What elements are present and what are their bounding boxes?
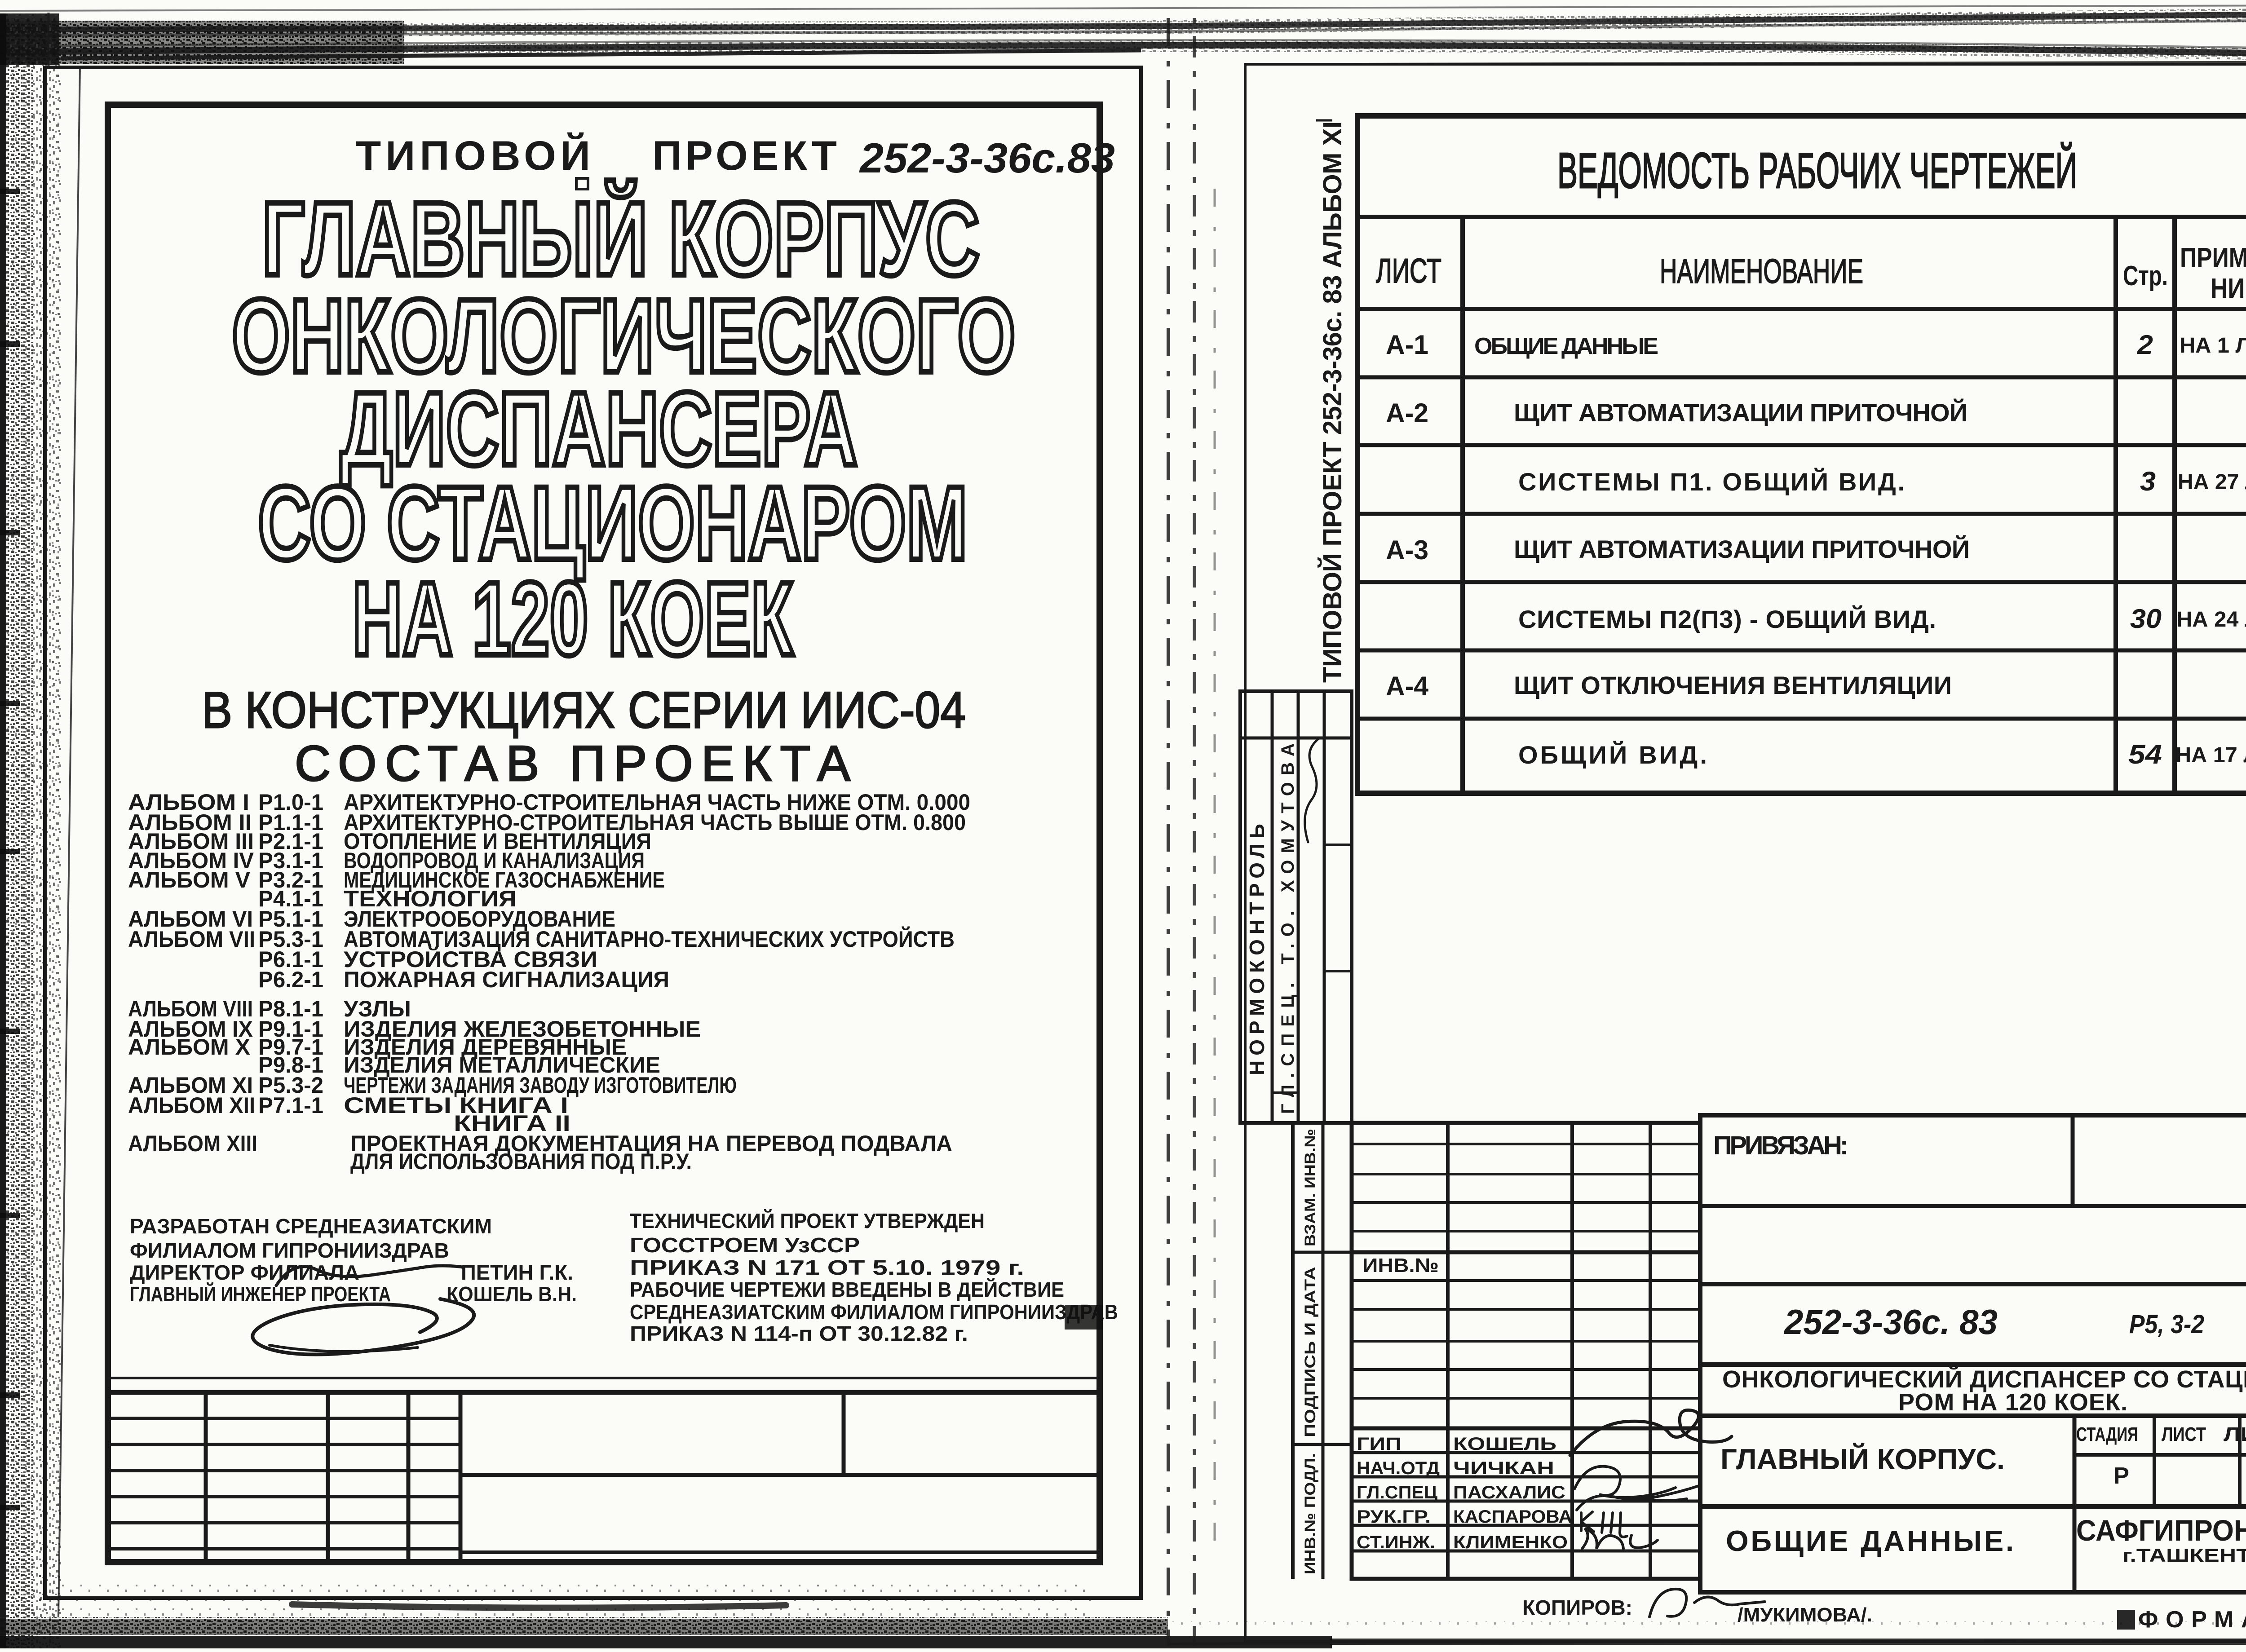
svg-text:54: 54 — [2128, 739, 2162, 769]
svg-text:А-2: А-2 — [1386, 398, 1428, 428]
svg-text:НА 1 ЛИСТЕ: НА 1 ЛИСТЕ — [2180, 334, 2246, 358]
svg-text:КОШЕЛЬ: КОШЕЛЬ — [1453, 1434, 1556, 1454]
svg-text:ЩИТ АВТОМАТИЗАЦИИ ПРИТОЧНОЙ: ЩИТ АВТОМАТИЗАЦИИ ПРИТОЧНОЙ — [1514, 398, 1967, 427]
svg-text:РУК.ГР.: РУК.ГР. — [1357, 1507, 1431, 1527]
svg-text:РАБОЧИЕ ЧЕРТЕЖИ ВВЕДЕНЫ В ДЕЙС: РАБОЧИЕ ЧЕРТЕЖИ ВВЕДЕНЫ В ДЕЙСТВИЕ — [630, 1278, 1064, 1301]
svg-text:ГЛАВНЫЙ КОРПУС.: ГЛАВНЫЙ КОРПУС. — [1720, 1443, 2005, 1475]
svg-text:ПРИВЯЗАН:: ПРИВЯЗАН: — [1713, 1131, 1848, 1160]
svg-text:Стр.: Стр. — [2123, 261, 2168, 292]
svg-text:АЛЬБОМ V: АЛЬБОМ V — [128, 867, 251, 892]
svg-text:ИНВ.№ ПОДЛ.: ИНВ.№ ПОДЛ. — [1302, 1453, 1319, 1574]
svg-text:ТИПОВОЙ ПРОЕКТ 252-3-36с. 83: ТИПОВОЙ ПРОЕКТ 252-3-36с. 83 АЛЬБОМ XI — [1318, 121, 1347, 683]
svg-text:ПОЖАРНАЯ СИГНАЛИЗАЦИЯ: ПОЖАРНАЯ СИГНАЛИЗАЦИЯ — [344, 967, 669, 992]
svg-text:252-3-36с.83: 252-3-36с.83 — [859, 134, 1115, 181]
svg-text:ИНВ.№: ИНВ.№ — [1362, 1254, 1439, 1277]
svg-text:ЩИТ ОТКЛЮЧЕНИЯ ВЕНТИЛЯЦИИ: ЩИТ ОТКЛЮЧЕНИЯ ВЕНТИЛЯЦИИ — [1514, 671, 1952, 699]
svg-text:ПЕТИН Г.К.: ПЕТИН Г.К. — [461, 1261, 573, 1284]
svg-text:252-3-36с. 83: 252-3-36с. 83 — [1783, 1302, 1998, 1342]
svg-text:ПРИКАЗ N 171 ОТ 5.10. 1979 г.: ПРИКАЗ N 171 ОТ 5.10. 1979 г. — [630, 1256, 1024, 1279]
svg-text:НА 24 ЛИСТАХ: НА 24 ЛИСТАХ — [2176, 608, 2246, 632]
svg-text:А-4: А-4 — [1386, 671, 1429, 701]
svg-text:ТЕХНИЧЕСКИЙ ПРОЕКТ УТВЕРЖДЕН: ТЕХНИЧЕСКИЙ ПРОЕКТ УТВЕРЖДЕН — [630, 1209, 985, 1232]
svg-text:Р: Р — [2113, 1463, 2129, 1489]
svg-text:ФОРМАТ 11: ФОРМАТ 11 — [2138, 1607, 2246, 1633]
svg-text:ВЕДОМОСТЬ РАБОЧИХ ЧЕРТЕЖЕЙ: ВЕДОМОСТЬ РАБОЧИХ ЧЕРТЕЖЕЙ — [1557, 142, 2077, 199]
svg-text:ЛИСТ: ЛИСТ — [2162, 1423, 2206, 1445]
svg-text:НА 27 ЛИСТАХ: НА 27 ЛИСТАХ — [2178, 470, 2246, 494]
svg-text:В КОНСТРУКЦИЯХ СЕРИИ ИИС-04: В КОНСТРУКЦИЯХ СЕРИИ ИИС-04 — [202, 682, 966, 739]
svg-text:НА 17 ЛИСТАХ.: НА 17 ЛИСТАХ. — [2175, 743, 2246, 767]
svg-text:ГОССТРОЕМ УзССР: ГОССТРОЕМ УзССР — [630, 1233, 860, 1257]
svg-text:НИЕ: НИЕ — [2211, 273, 2246, 304]
svg-text:/МУКИМОВА/.: /МУКИМОВА/. — [1738, 1604, 1872, 1626]
svg-text:30: 30 — [2130, 604, 2162, 634]
svg-text:ЧИЧКАН: ЧИЧКАН — [1453, 1458, 1554, 1478]
svg-text:ГЛАВНЫЙ ИНЖЕНЕР ПРОЕКТА: ГЛАВНЫЙ ИНЖЕНЕР ПРОЕКТА — [130, 1282, 391, 1306]
svg-text:А-1: А-1 — [1386, 330, 1428, 360]
svg-text:ОБЩИЕ ДАННЫЕ.: ОБЩИЕ ДАННЫЕ. — [1726, 1524, 2014, 1557]
svg-text:КОПИРОВ:: КОПИРОВ: — [1522, 1596, 1632, 1619]
svg-text:Р7.1-1: Р7.1-1 — [258, 1093, 323, 1118]
svg-text:КАСПАРОВА: КАСПАРОВА — [1453, 1507, 1572, 1527]
svg-text:ПРИКАЗ N 114-п ОТ 30.12.82 г.: ПРИКАЗ N 114-п ОТ 30.12.82 г. — [630, 1322, 968, 1345]
svg-text:НАЧ.ОТД: НАЧ.ОТД — [1357, 1458, 1440, 1478]
svg-text:г.ТАШКЕНТ: г.ТАШКЕНТ — [2122, 1545, 2246, 1566]
svg-text:САФГИПРОНИИЗ: САФГИПРОНИИЗ — [2076, 1514, 2246, 1547]
svg-text:Р5, 3-2: Р5, 3-2 — [2129, 1310, 2204, 1339]
svg-text:ГИП: ГИП — [1357, 1434, 1402, 1454]
svg-text:АЛЬБОМ XIII: АЛЬБОМ XIII — [128, 1131, 257, 1156]
svg-text:НАИМЕНОВАНИЕ: НАИМЕНОВАНИЕ — [1660, 252, 1863, 291]
svg-text:ЩИТ АВТОМАТИЗАЦИИ ПРИТОЧНОЙ: ЩИТ АВТОМАТИЗАЦИИ ПРИТОЧНОЙ — [1514, 535, 1970, 563]
svg-text:СТАДИЯ: СТАДИЯ — [2076, 1423, 2138, 1445]
svg-text:СРЕДНЕАЗИАТСКИМ ФИЛИАЛОМ ГИПРО: СРЕДНЕАЗИАТСКИМ ФИЛИАЛОМ ГИПРОНИИЗДРАВ — [630, 1300, 1118, 1324]
svg-text:ЛИСТ: ЛИСТ — [1376, 252, 1441, 290]
svg-text:ОБЩИЕ ДАННЫЕ: ОБЩИЕ ДАННЫЕ — [1474, 333, 1658, 359]
svg-text:АЛЬБОМ XII: АЛЬБОМ XII — [128, 1093, 255, 1118]
svg-text:ПОДПИСЬ И ДАТА: ПОДПИСЬ И ДАТА — [1302, 1267, 1319, 1437]
svg-text:ДЛЯ ИСПОЛЬЗОВАНИЯ ПОД П.Р.У.: ДЛЯ ИСПОЛЬЗОВАНИЯ ПОД П.Р.У. — [350, 1149, 692, 1174]
svg-text:РАЗРАБОТАН СРЕДНЕАЗИАТСКИМ: РАЗРАБОТАН СРЕДНЕАЗИАТСКИМ — [130, 1215, 492, 1238]
svg-text:СТ.ИНЖ.: СТ.ИНЖ. — [1357, 1533, 1435, 1552]
svg-text:2: 2 — [2137, 330, 2153, 360]
svg-text:ЛИСТОВ: ЛИСТОВ — [2224, 1423, 2246, 1445]
svg-text:ПРИМЕЧА-: ПРИМЕЧА- — [2180, 243, 2246, 274]
svg-text:ВЗАМ. ИНВ.№: ВЗАМ. ИНВ.№ — [1302, 1129, 1319, 1246]
svg-text:ФИЛИАЛОМ ГИПРОНИИЗДРАВ: ФИЛИАЛОМ ГИПРОНИИЗДРАВ — [130, 1239, 449, 1262]
svg-text:АЛЬБОМ VII: АЛЬБОМ VII — [128, 927, 255, 952]
svg-text:КОШЕЛЬ В.Н.: КОШЕЛЬ В.Н. — [447, 1282, 577, 1306]
svg-text:3: 3 — [2140, 466, 2156, 496]
svg-text:РОМ НА 120 КОЕК.: РОМ НА 120 КОЕК. — [1898, 1389, 2127, 1416]
svg-text:КЛИМЕНКО: КЛИМЕНКО — [1453, 1533, 1568, 1552]
svg-text:А-3: А-3 — [1386, 535, 1428, 565]
svg-text:СИСТЕМЫ П2(П3) - ОБЩИЙ ВИД.: СИСТЕМЫ П2(П3) - ОБЩИЙ ВИД. — [1518, 605, 1936, 633]
svg-text:Р6.2-1: Р6.2-1 — [258, 967, 323, 992]
svg-text:ПАСХАЛИС: ПАСХАЛИС — [1453, 1483, 1565, 1502]
svg-text:АЛЬБОМ X: АЛЬБОМ X — [128, 1034, 250, 1060]
svg-text:ГЛ.СПЕЦ: ГЛ.СПЕЦ — [1357, 1483, 1437, 1502]
svg-text:ТИПОВОЙ: ТИПОВОЙ — [356, 132, 590, 179]
svg-text:НА 120 КОЕК: НА 120 КОЕК — [352, 561, 794, 677]
